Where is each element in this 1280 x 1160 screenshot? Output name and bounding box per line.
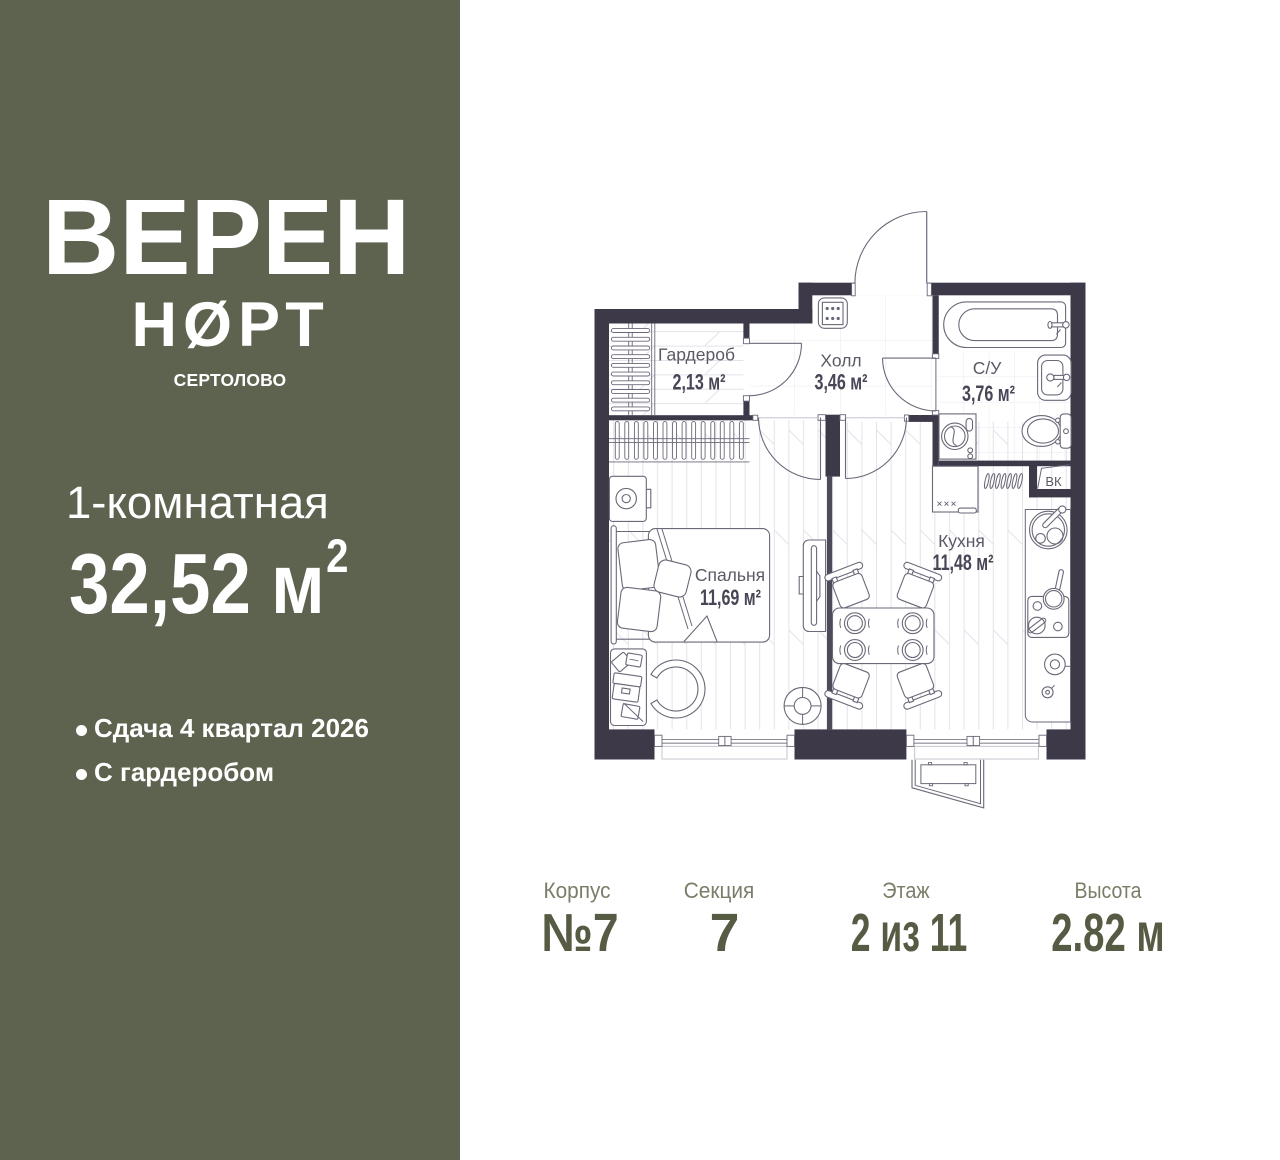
svg-text:11,69 м²: 11,69 м² [700,587,761,611]
svg-text:Гардероб: Гардероб [658,345,735,365]
svg-text:Спальня: Спальня [695,565,765,585]
svg-text:Кухня: Кухня [938,531,985,551]
svg-text:ВК: ВК [1045,474,1062,489]
svg-text:Холл: Холл [820,351,861,371]
svg-text:С/У: С/У [973,358,1003,378]
svg-text:2,13 м²: 2,13 м² [673,371,726,395]
svg-text:11,48 м²: 11,48 м² [933,552,994,576]
svg-text:3,46 м²: 3,46 м² [815,371,868,395]
svg-text:3,76 м²: 3,76 м² [962,383,1015,407]
